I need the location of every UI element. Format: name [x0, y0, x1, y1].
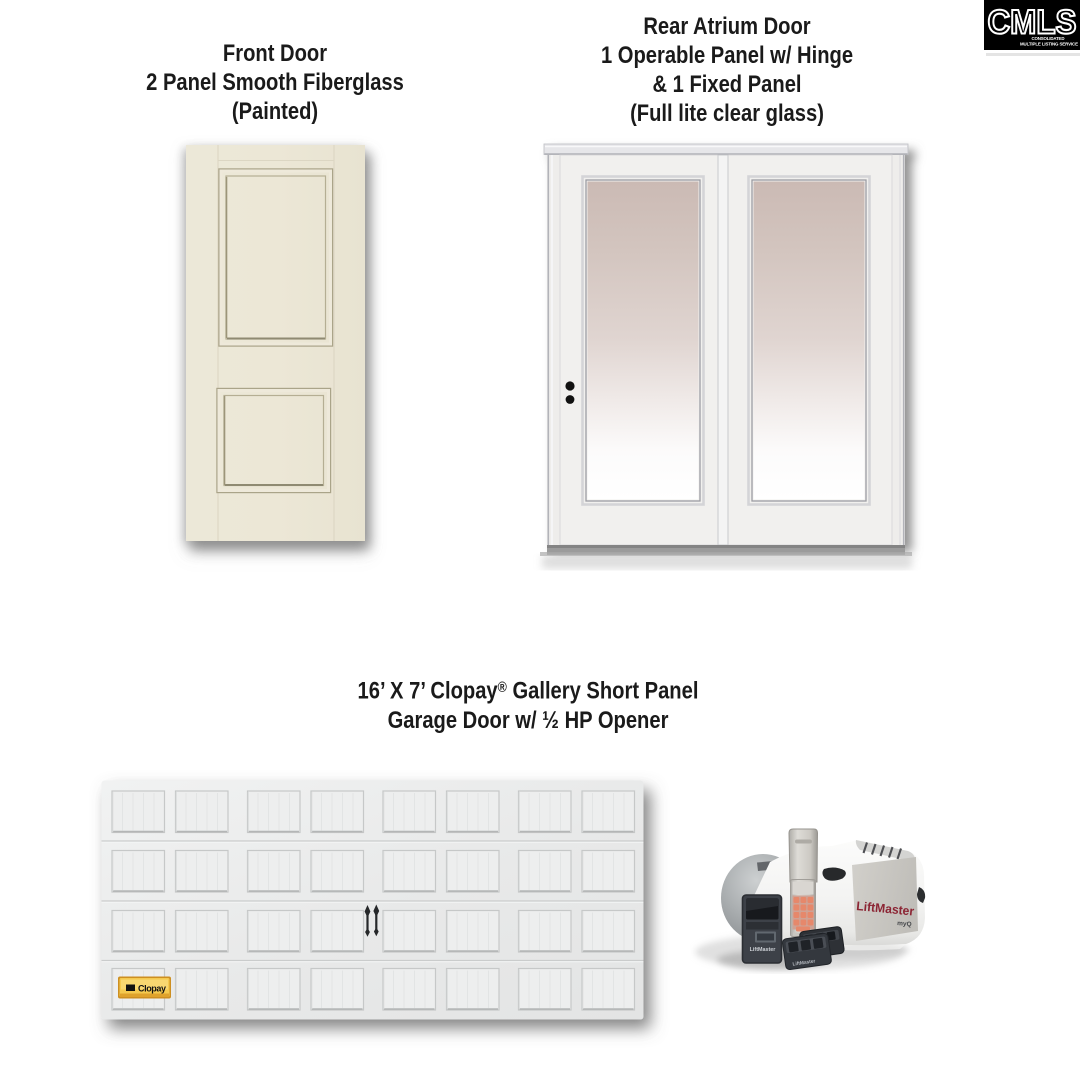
svg-text:myQ: myQ: [897, 920, 912, 928]
svg-text:MULTIPLE LISTING SERVICE: MULTIPLE LISTING SERVICE: [1020, 41, 1078, 46]
svg-text:CONSOLIDATED: CONSOLIDATED: [1032, 36, 1065, 41]
svg-text:LiftMaster: LiftMaster: [750, 947, 777, 953]
svg-text:Clopay: Clopay: [138, 984, 166, 994]
